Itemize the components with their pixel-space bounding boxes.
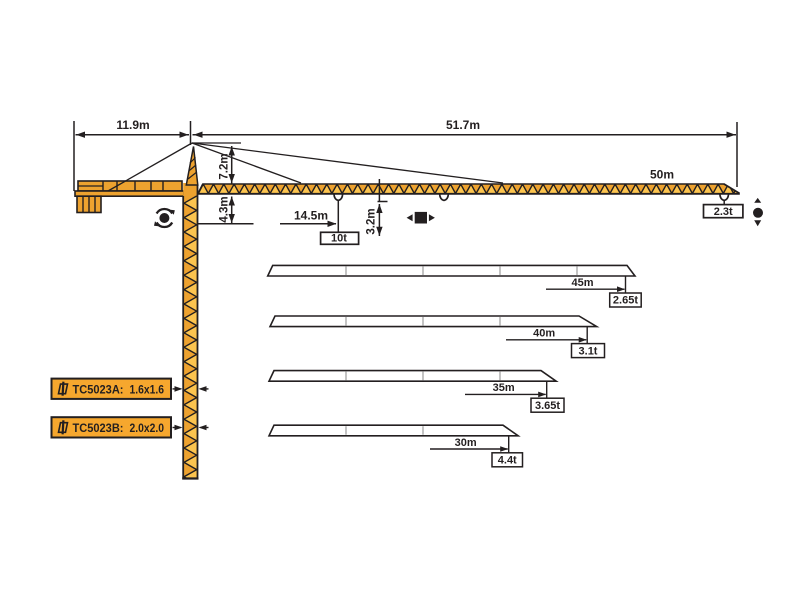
svg-text:4.4t: 4.4t (498, 455, 517, 467)
svg-text:50m: 50m (650, 167, 674, 181)
svg-text:3.1t: 3.1t (579, 345, 598, 357)
svg-text:45m: 45m (571, 277, 593, 289)
svg-text:14.5m: 14.5m (294, 209, 328, 223)
svg-text:40m: 40m (533, 328, 555, 340)
svg-text:TC5023A:: TC5023A: (73, 385, 124, 397)
svg-text:10t: 10t (331, 233, 347, 245)
svg-text:51.7m: 51.7m (446, 118, 480, 132)
svg-text:TC5023B:: TC5023B: (73, 423, 124, 435)
svg-text:2.65t: 2.65t (613, 295, 638, 307)
svg-text:30m: 30m (455, 437, 477, 449)
svg-text:7.2m: 7.2m (219, 153, 231, 179)
svg-text:3.2m: 3.2m (366, 208, 378, 234)
svg-text:11.9m: 11.9m (116, 118, 149, 132)
svg-text:2.3t: 2.3t (714, 206, 733, 218)
svg-text:4.3m: 4.3m (219, 196, 231, 222)
svg-text:2.0x2.0: 2.0x2.0 (130, 423, 165, 435)
svg-text:1.6x1.6: 1.6x1.6 (130, 385, 165, 397)
svg-text:3.65t: 3.65t (535, 400, 560, 412)
svg-text:35m: 35m (493, 382, 515, 394)
